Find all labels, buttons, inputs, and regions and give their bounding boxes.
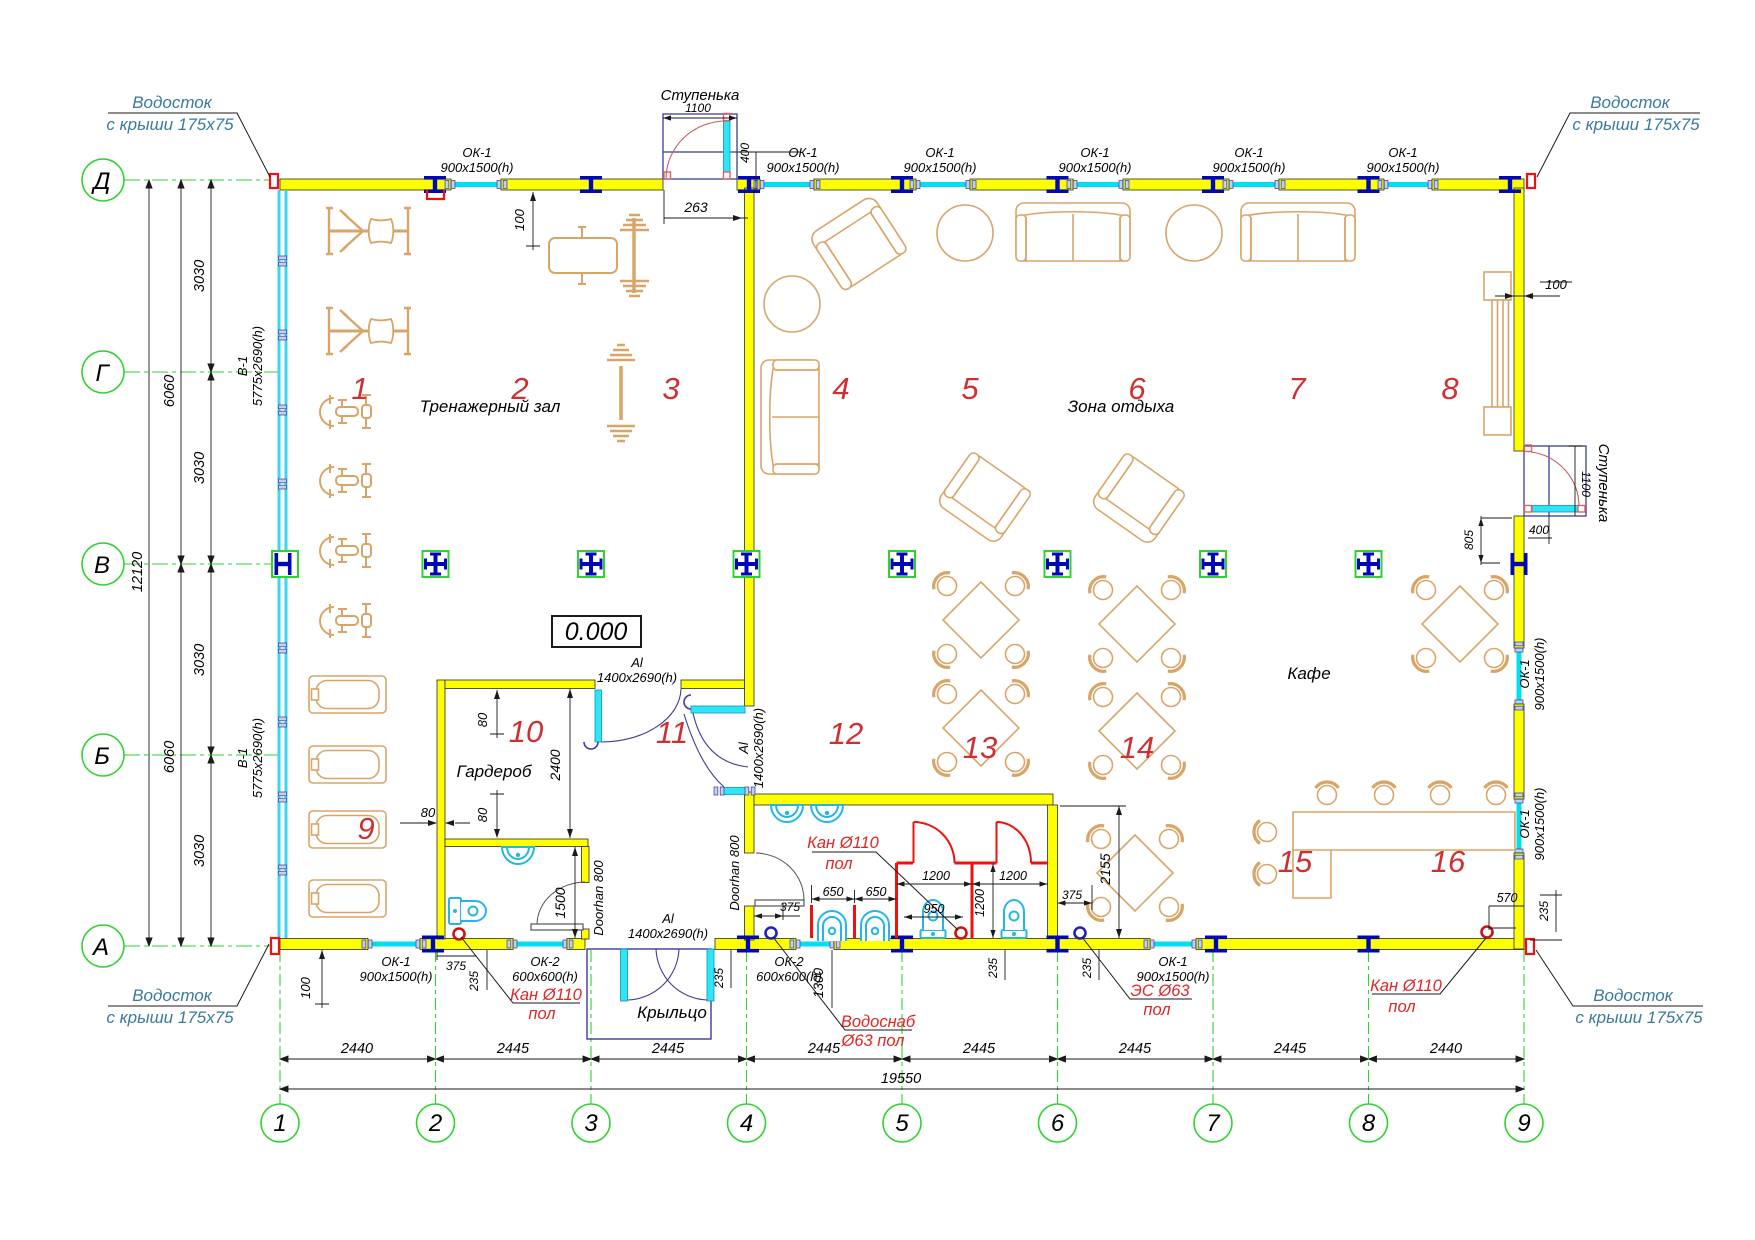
svg-text:235: 235 xyxy=(1080,958,1094,979)
svg-text:5775х2690(h): 5775х2690(h) xyxy=(250,718,265,798)
svg-text:900х1500(h): 900х1500(h) xyxy=(360,969,433,984)
svg-text:Ø63 пол: Ø63 пол xyxy=(841,1032,905,1050)
svg-text:19550: 19550 xyxy=(881,1071,921,1087)
svg-text:2155: 2155 xyxy=(1097,853,1113,885)
svg-text:Al: Al xyxy=(630,655,644,670)
svg-text:1: 1 xyxy=(351,371,368,406)
svg-text:9: 9 xyxy=(357,811,374,846)
svg-text:80: 80 xyxy=(475,712,490,727)
svg-text:Водосток: Водосток xyxy=(1590,93,1671,112)
svg-text:ОК-1: ОК-1 xyxy=(1517,809,1532,838)
svg-text:900х1500(h): 900х1500(h) xyxy=(1367,160,1440,175)
svg-text:570: 570 xyxy=(1497,891,1518,905)
svg-text:900х1500(h): 900х1500(h) xyxy=(904,160,977,175)
svg-text:2: 2 xyxy=(428,1110,442,1137)
svg-text:12120: 12120 xyxy=(130,552,146,592)
svg-text:12: 12 xyxy=(829,716,863,751)
svg-text:5775х2690(h): 5775х2690(h) xyxy=(250,326,265,406)
svg-text:ОК-1: ОК-1 xyxy=(1158,954,1187,969)
svg-text:ОК-2: ОК-2 xyxy=(774,954,804,969)
svg-text:с крыши 175х75: с крыши 175х75 xyxy=(106,1008,234,1027)
svg-text:1100: 1100 xyxy=(1579,471,1593,497)
svg-text:Al: Al xyxy=(736,741,751,755)
svg-text:650: 650 xyxy=(866,885,887,899)
svg-text:950: 950 xyxy=(924,902,945,916)
svg-text:13: 13 xyxy=(963,730,997,765)
svg-text:ОК-1: ОК-1 xyxy=(925,145,954,160)
svg-text:8: 8 xyxy=(1441,371,1459,406)
svg-text:600х600(h): 600х600(h) xyxy=(512,969,578,984)
svg-text:с крыши 175х75: с крыши 175х75 xyxy=(1575,1008,1703,1027)
svg-text:100: 100 xyxy=(512,208,527,230)
svg-text:900х1500(h): 900х1500(h) xyxy=(1213,160,1286,175)
svg-text:2445: 2445 xyxy=(962,1041,996,1057)
svg-text:100: 100 xyxy=(1545,277,1567,292)
svg-text:ОК-1: ОК-1 xyxy=(1080,145,1109,160)
svg-text:6060: 6060 xyxy=(162,375,178,407)
svg-text:11: 11 xyxy=(656,715,688,750)
svg-text:14: 14 xyxy=(1120,730,1154,765)
svg-text:375: 375 xyxy=(446,959,466,973)
svg-text:7: 7 xyxy=(1288,371,1307,406)
svg-text:2440: 2440 xyxy=(1429,1041,1462,1057)
svg-text:Гардероб: Гардероб xyxy=(457,762,533,781)
svg-text:1300: 1300 xyxy=(811,967,826,998)
svg-text:9: 9 xyxy=(1517,1110,1530,1137)
svg-text:3030: 3030 xyxy=(192,835,208,867)
svg-text:1200: 1200 xyxy=(922,869,950,883)
svg-text:Кан Ø110: Кан Ø110 xyxy=(510,986,583,1004)
svg-text:2400: 2400 xyxy=(547,749,563,781)
svg-text:пол: пол xyxy=(528,1005,555,1023)
svg-text:Al: Al xyxy=(661,911,675,926)
svg-text:900х1500(h): 900х1500(h) xyxy=(1532,638,1547,711)
svg-text:80: 80 xyxy=(475,807,490,822)
svg-text:ОК-1: ОК-1 xyxy=(381,954,410,969)
svg-text:ОК-1: ОК-1 xyxy=(1234,145,1263,160)
svg-text:Водоснаб: Водоснаб xyxy=(841,1013,916,1031)
svg-text:1400х2690(h): 1400х2690(h) xyxy=(751,708,766,788)
svg-text:Doorhan 800: Doorhan 800 xyxy=(591,860,606,936)
svg-text:375: 375 xyxy=(1062,888,1082,902)
svg-text:3030: 3030 xyxy=(192,260,208,292)
svg-text:ОК-1: ОК-1 xyxy=(1388,145,1417,160)
svg-text:16: 16 xyxy=(1431,844,1466,879)
svg-text:400: 400 xyxy=(1529,523,1549,537)
svg-text:Doorhan 800: Doorhan 800 xyxy=(727,835,742,911)
svg-text:В-1: В-1 xyxy=(235,356,250,376)
svg-text:6: 6 xyxy=(1051,1110,1065,1137)
svg-text:2445: 2445 xyxy=(1273,1041,1307,1057)
svg-text:1100: 1100 xyxy=(685,101,711,115)
svg-text:235: 235 xyxy=(467,971,481,992)
svg-text:ОК-1: ОК-1 xyxy=(1517,659,1532,688)
svg-text:Кафе: Кафе xyxy=(1287,664,1330,683)
svg-text:3: 3 xyxy=(584,1110,598,1137)
svg-text:1200: 1200 xyxy=(999,869,1027,883)
svg-text:Кан Ø110: Кан Ø110 xyxy=(807,834,880,852)
svg-text:1400х2690(h): 1400х2690(h) xyxy=(597,670,677,685)
svg-text:3: 3 xyxy=(662,371,679,406)
svg-text:ЭС Ø63: ЭС Ø63 xyxy=(1130,982,1190,1000)
svg-text:4: 4 xyxy=(832,371,849,406)
svg-text:6060: 6060 xyxy=(162,741,178,773)
svg-text:В: В xyxy=(94,552,110,579)
svg-text:805: 805 xyxy=(1462,530,1476,550)
svg-text:Зона отдыха: Зона отдыха xyxy=(1068,397,1175,416)
svg-text:8: 8 xyxy=(1362,1110,1376,1137)
svg-text:В-1: В-1 xyxy=(235,748,250,768)
svg-text:Водосток: Водосток xyxy=(132,93,213,112)
svg-text:400: 400 xyxy=(738,143,752,163)
svg-text:1400х2690(h): 1400х2690(h) xyxy=(628,926,708,941)
svg-text:1200: 1200 xyxy=(973,889,987,917)
svg-text:3030: 3030 xyxy=(192,452,208,484)
svg-text:2440: 2440 xyxy=(340,1041,373,1057)
svg-text:2445: 2445 xyxy=(807,1041,841,1057)
svg-text:ОК-1: ОК-1 xyxy=(788,145,817,160)
svg-text:2445: 2445 xyxy=(496,1041,530,1057)
svg-text:900х1500(h): 900х1500(h) xyxy=(1059,160,1132,175)
svg-text:235: 235 xyxy=(1537,901,1551,922)
svg-text:ОК-1: ОК-1 xyxy=(462,145,491,160)
svg-text:900х1500(h): 900х1500(h) xyxy=(767,160,840,175)
svg-text:Крыльцо: Крыльцо xyxy=(637,1003,707,1022)
svg-text:5: 5 xyxy=(961,371,979,406)
svg-text:Г: Г xyxy=(95,360,110,387)
svg-text:235: 235 xyxy=(986,958,1000,979)
svg-text:с крыши 175х75: с крыши 175х75 xyxy=(106,115,234,134)
svg-text:650: 650 xyxy=(823,885,844,899)
svg-text:0.000: 0.000 xyxy=(565,618,628,646)
svg-text:пол: пол xyxy=(825,855,852,873)
svg-text:Тренажерный зал: Тренажерный зал xyxy=(420,397,561,416)
svg-text:900х1500(h): 900х1500(h) xyxy=(1532,788,1547,861)
svg-text:900х1500(h): 900х1500(h) xyxy=(441,160,514,175)
svg-text:1: 1 xyxy=(273,1110,286,1137)
svg-text:100: 100 xyxy=(298,976,313,998)
svg-text:Кан Ø110: Кан Ø110 xyxy=(1370,977,1443,995)
svg-text:4: 4 xyxy=(740,1110,753,1137)
svg-text:2445: 2445 xyxy=(651,1041,685,1057)
svg-text:Водосток: Водосток xyxy=(132,986,213,1005)
svg-text:1500: 1500 xyxy=(552,887,568,918)
svg-text:15: 15 xyxy=(1278,844,1313,879)
svg-text:с крыши 175х75: с крыши 175х75 xyxy=(1572,115,1700,134)
svg-text:пол: пол xyxy=(1388,998,1415,1016)
svg-text:2445: 2445 xyxy=(1118,1041,1152,1057)
svg-text:Ступенька: Ступенька xyxy=(1595,444,1612,523)
svg-text:80: 80 xyxy=(421,805,436,820)
svg-text:235: 235 xyxy=(712,968,726,989)
svg-text:3030: 3030 xyxy=(192,644,208,676)
svg-text:пол: пол xyxy=(1143,1001,1170,1019)
svg-text:Д: Д xyxy=(91,168,111,195)
svg-text:5: 5 xyxy=(895,1110,909,1137)
svg-text:Б: Б xyxy=(94,743,110,770)
svg-text:10: 10 xyxy=(509,714,543,749)
svg-text:ОК-2: ОК-2 xyxy=(530,954,560,969)
svg-text:Водосток: Водосток xyxy=(1593,986,1674,1005)
svg-text:А: А xyxy=(91,934,109,961)
svg-text:263: 263 xyxy=(683,199,708,215)
svg-text:7: 7 xyxy=(1206,1110,1221,1137)
